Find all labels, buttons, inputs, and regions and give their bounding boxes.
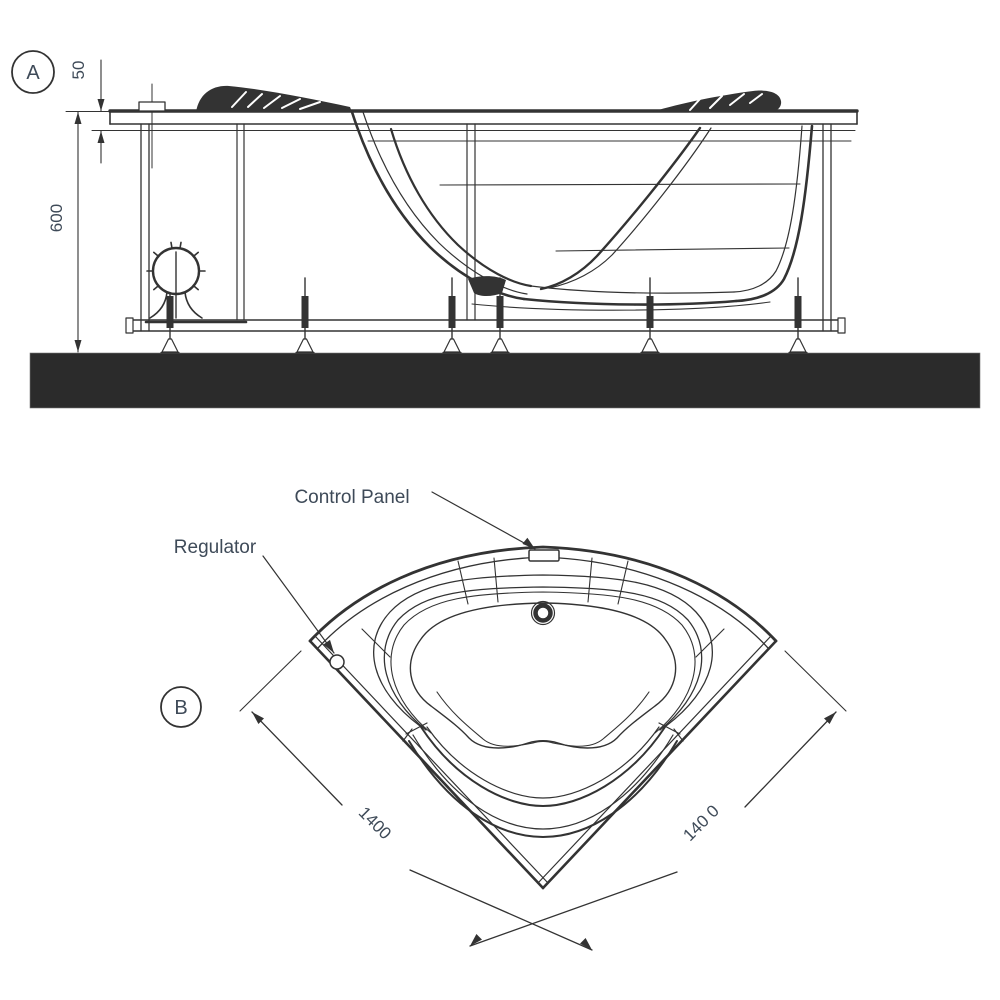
arrowhead: [580, 938, 592, 950]
regulator-label: Regulator: [174, 537, 257, 558]
pump-icon: [147, 242, 205, 318]
arrowhead: [98, 131, 105, 143]
corner-walls: [310, 636, 776, 888]
control-panel-marker: [529, 550, 559, 561]
arrowhead: [75, 112, 82, 124]
control-panel-callout: Control Panel: [294, 487, 535, 549]
view-b-badge: B: [161, 687, 201, 727]
rim-dim-label: 50: [69, 61, 88, 80]
height-dim-label: 600: [47, 204, 66, 232]
dimension-1400-right: 140 0: [470, 651, 846, 946]
bathtub-technical-drawing: 600 50 A: [0, 0, 1000, 1000]
leveling-foot: [641, 278, 659, 353]
view-a-badge: A: [12, 51, 54, 93]
view-a-letter: A: [26, 62, 40, 84]
dimension-1400-left: 1400: [240, 651, 592, 950]
tub-bowl-profile: [196, 86, 851, 310]
deck-band: [374, 575, 713, 733]
tub-rim: [66, 111, 857, 131]
regulator-icon: [330, 655, 344, 669]
leveling-foot: [296, 278, 314, 353]
regulator-callout: Regulator: [174, 537, 334, 653]
faucet-icon: [532, 602, 555, 625]
plan-view: Control Panel Regulator 1400: [161, 487, 846, 950]
side-elevation-view: 600 50 A: [12, 51, 980, 408]
arrowhead: [75, 340, 82, 352]
leveling-foot: [789, 278, 807, 353]
view-b-letter: B: [174, 697, 187, 719]
dimension-600: 600: [47, 112, 82, 352]
drain-trap: [468, 276, 506, 296]
deck-fitting-marker: [139, 102, 165, 111]
control-panel-label: Control Panel: [294, 487, 409, 508]
right-dim-label: 140 0: [679, 801, 723, 845]
arrowhead: [98, 99, 105, 111]
leveling-foot: [443, 278, 461, 353]
drawing-canvas: 600 50 A: [0, 0, 1000, 1000]
floor-slab: [30, 353, 980, 408]
left-headrest: [196, 86, 352, 112]
